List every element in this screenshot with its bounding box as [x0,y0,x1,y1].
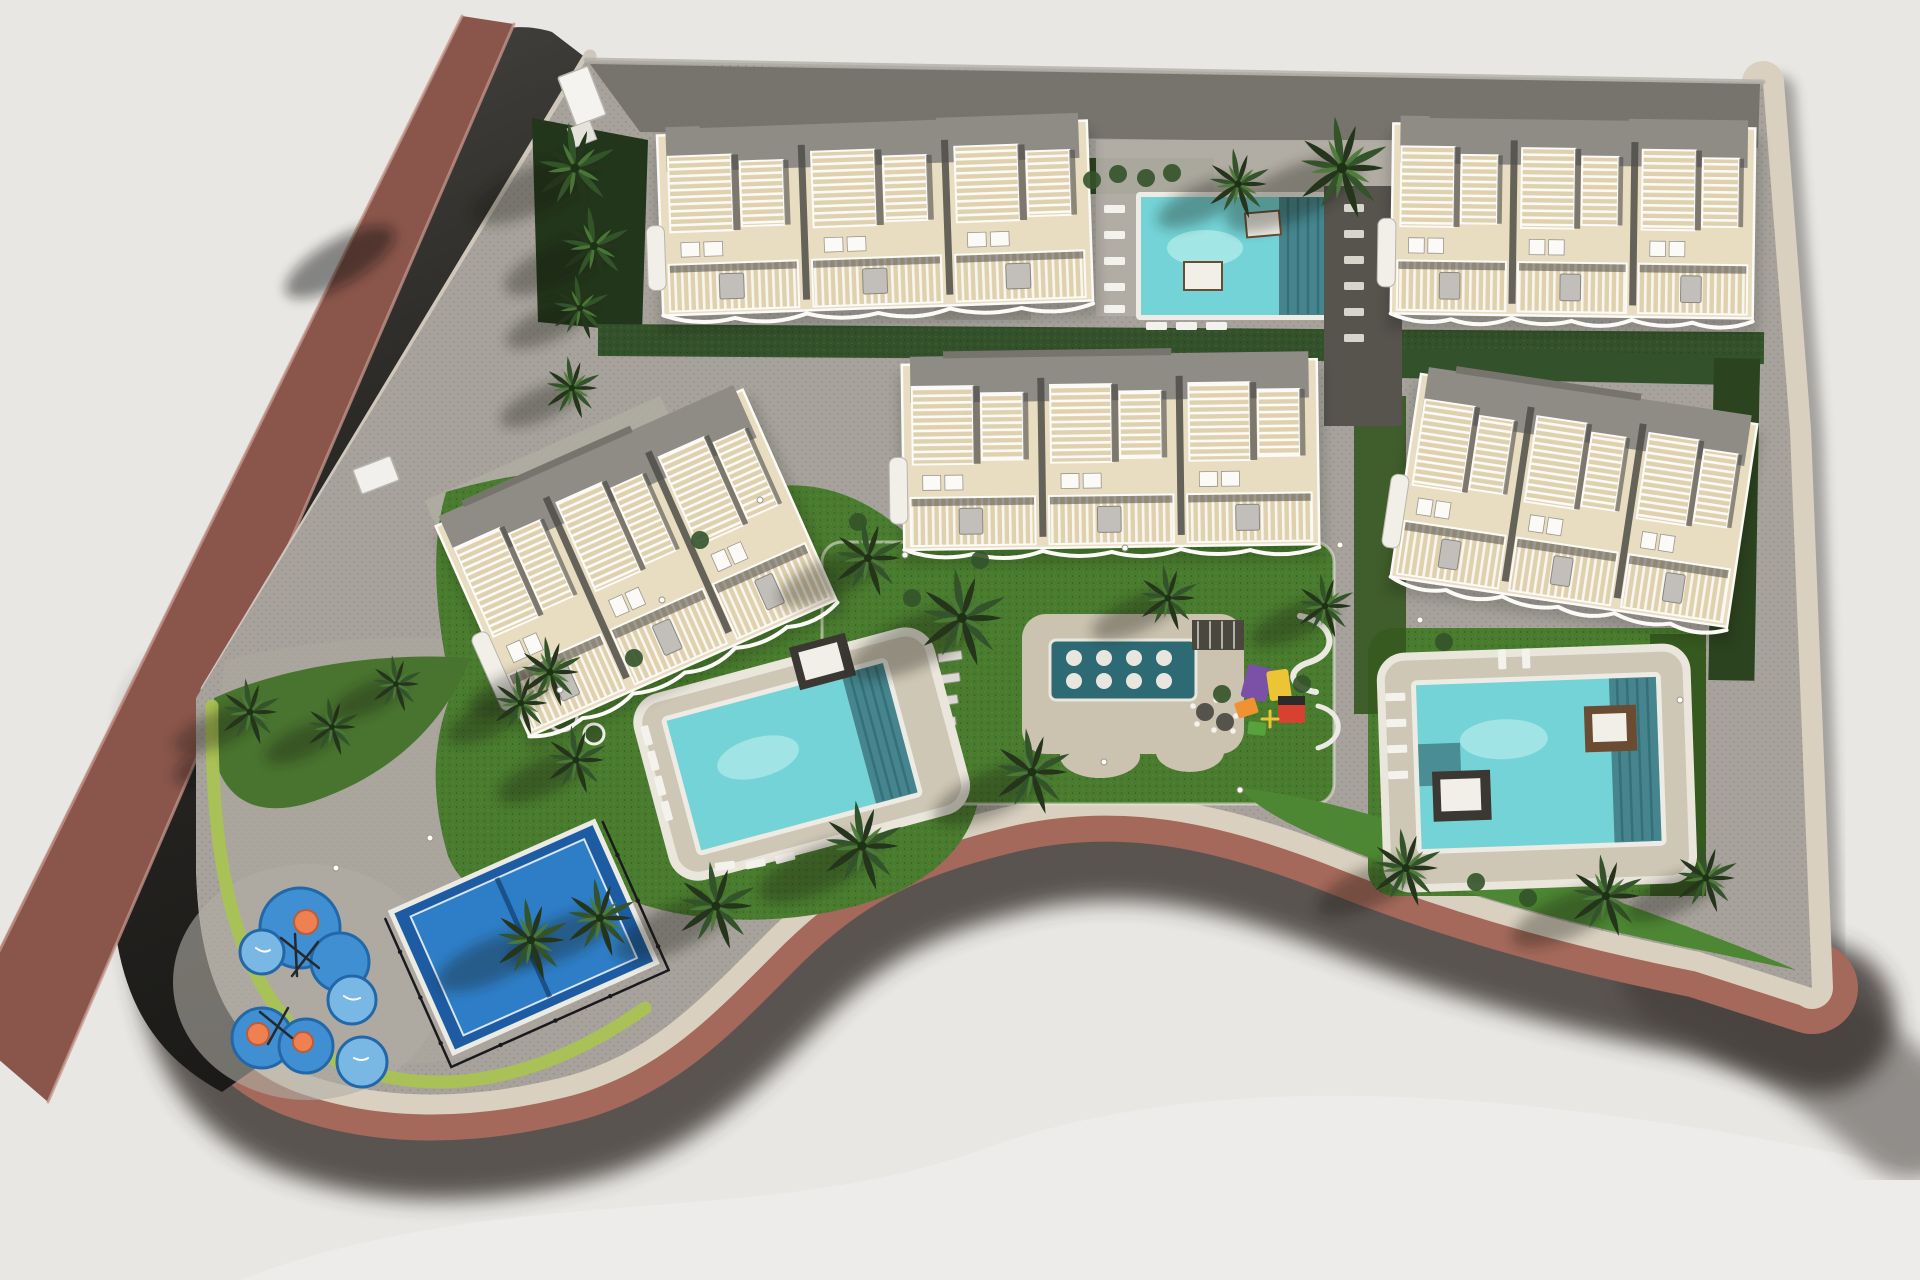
bush [971,551,989,569]
palm-crown [1602,892,1610,900]
bush [625,649,643,667]
roof-lounger [704,241,723,256]
roof-lounger [1529,239,1545,254]
terrace-railings [668,155,734,233]
palm-crown [1337,163,1347,173]
roof-lounger [1199,472,1217,487]
spa-jet-seat [1096,650,1112,666]
spa-jet-seat [1156,650,1172,666]
roof-lounger [1658,534,1675,552]
lounger [1522,648,1531,668]
pergola [1192,620,1244,650]
bush [903,589,921,607]
parked-car [1006,263,1031,289]
roof-lounger [681,242,700,257]
spa-jet-seat [1126,650,1142,666]
trampoline [294,910,318,934]
terrace-railings [954,145,1020,223]
parked-car [959,508,983,534]
parked-car [1662,572,1685,603]
lounger [1104,257,1125,265]
terrace-railings [912,386,974,465]
palm-crown [1702,874,1709,881]
lamp-post [557,687,563,693]
lounger [1344,282,1364,290]
parked-car [1560,274,1581,301]
terrace-railings [1119,391,1161,458]
cabana-mattress [1440,778,1481,811]
palm-crown [518,700,525,707]
spa-jet-seat [1066,673,1082,689]
spa-jet-seat [1096,673,1112,689]
trampoline [247,1023,269,1045]
trampoline [293,1032,313,1052]
bush [1163,164,1181,182]
roof-lounger [1640,531,1657,549]
terrace-shade [1497,155,1503,223]
block-north-east [1376,110,1761,334]
lamp-post [1122,545,1128,551]
lamp-post [1677,697,1683,703]
bush [1109,165,1127,183]
terrace-railings [1461,155,1498,224]
terrace-shade [1695,151,1702,231]
parked-car [1438,539,1461,570]
stair-wing [889,457,908,524]
block-center [888,346,1326,566]
palm-crown [573,757,580,764]
play-module [1247,721,1266,736]
aerial-site-plan-render [0,0,1920,1280]
roof-lounger [990,231,1009,246]
stair-wing [1377,218,1396,287]
lounger [1146,322,1167,330]
lounger [1206,322,1227,330]
terrace-railings [1400,146,1454,227]
palm-crown [247,709,254,716]
lamp-post [1101,759,1107,765]
float-bed [1184,262,1222,290]
terrace-shade [1618,157,1624,225]
stair-wing [646,225,666,290]
terrace-railings [1026,150,1071,216]
palm-crown [329,724,335,730]
palm-crown [393,681,399,687]
roof-lounger [1083,473,1101,488]
bush [1293,675,1311,693]
lamp-post [1337,542,1343,548]
lounger [1104,205,1125,213]
roof-lounger [1428,238,1444,253]
parked-car [1550,556,1573,587]
spa-jet-seat [1156,673,1172,689]
terrace-shade [1574,149,1581,229]
parked-car [719,273,744,299]
water-highlight [1167,230,1243,266]
terrace-shade [1111,384,1119,462]
bush [1213,685,1231,703]
terrace-shade [1738,159,1744,227]
terrace-shade [973,386,981,464]
chair [1194,721,1200,727]
terrace-shade [1299,389,1305,456]
chair [1211,727,1217,733]
palm-crown [1028,768,1037,777]
palm-crown [577,305,584,312]
bush [1083,171,1101,189]
roof-lounger [847,236,866,251]
terrace-railings [1702,158,1739,227]
lamp-post [1417,617,1423,623]
lounger [1385,693,1405,702]
palm-crown [596,914,604,922]
terrace-railings [981,393,1023,460]
palm-crown [590,242,598,250]
roof-lounger [1221,471,1239,486]
parked-car [862,268,887,294]
spa-jet-seat [1126,673,1142,689]
palm-crown [570,163,579,172]
cafe-table [1196,703,1214,721]
terrace-railings [1521,148,1575,229]
lamp-post [659,597,665,603]
roof-lounger [1528,515,1545,533]
bush [849,513,867,531]
east-pool-area [1380,643,1694,890]
parked-car [1097,506,1121,532]
lounger [1104,231,1125,239]
parked-car [1680,276,1701,303]
lounger [1498,649,1507,669]
play-pad [337,1037,387,1087]
lounger [1176,322,1197,330]
spa-deck-lobe [1156,732,1224,772]
bush [691,531,709,549]
palm-crown [1165,595,1172,602]
spa-deck-lobe [1060,734,1140,778]
block-north-west [643,107,1100,332]
bush [1435,633,1453,651]
play-house-roof [1278,696,1305,705]
lounger [1344,256,1364,264]
palm-crown [957,613,967,623]
roof-lounger [945,475,963,490]
terrace-shade [1453,147,1460,227]
terrace-railings [740,160,785,226]
lounger [1344,308,1364,316]
palm-crown [857,841,866,850]
lamp-post [1237,787,1243,793]
roof-lounger [1650,241,1666,256]
bush [1467,873,1485,891]
roof-lounger [824,237,843,252]
terrace-railings [883,155,928,221]
roof-lounger [1669,241,1685,256]
chair [1190,703,1196,709]
parked-car [1439,272,1460,299]
palm-crown [546,668,553,675]
bush [1137,169,1155,187]
roof-lounger [967,232,986,247]
spa-pool [1050,640,1196,700]
roof-lounger [1546,517,1563,535]
roof-lounger [1434,501,1451,519]
terrace-railings [811,150,877,228]
lounger [1104,305,1125,313]
lounger [1387,745,1407,754]
lounger [1344,230,1364,238]
roof-lounger [1416,498,1433,516]
palm-crown [527,936,535,944]
terrace-railings [1258,389,1300,456]
lamp-post [902,552,908,558]
lounger [1386,719,1406,728]
terrace-railings [1050,384,1112,463]
lamp-post [757,497,763,503]
cabana-mattress [1592,713,1627,742]
palm-crown [1322,603,1329,610]
terrace-shade [1249,382,1257,460]
terrace-railings [1642,150,1696,231]
site-plan-canvas [0,0,1920,1280]
palm-crown [864,554,872,562]
terrace-shade [1022,393,1028,460]
lounger [1104,283,1125,291]
palm-crown [712,902,721,911]
lamp-post [333,865,339,871]
terrace-shade [1161,391,1167,458]
palm-crown [1402,864,1410,872]
parked-car [1236,504,1260,530]
lounger [1344,334,1364,342]
spa-jet-seat [1066,650,1082,666]
palm-crown [1234,180,1241,187]
chair [1230,728,1236,734]
cafe-table [1216,713,1234,731]
bush [1519,889,1537,907]
palm-crown [569,385,575,391]
lamp-post [427,835,433,841]
terrace-railings [1188,382,1250,461]
roof-lounger [1548,240,1564,255]
terrace-railings [1581,157,1618,226]
lounger [1388,771,1408,780]
roof-lounger [1061,473,1079,488]
roof-lounger [1408,238,1424,253]
roof-lounger [923,475,941,490]
